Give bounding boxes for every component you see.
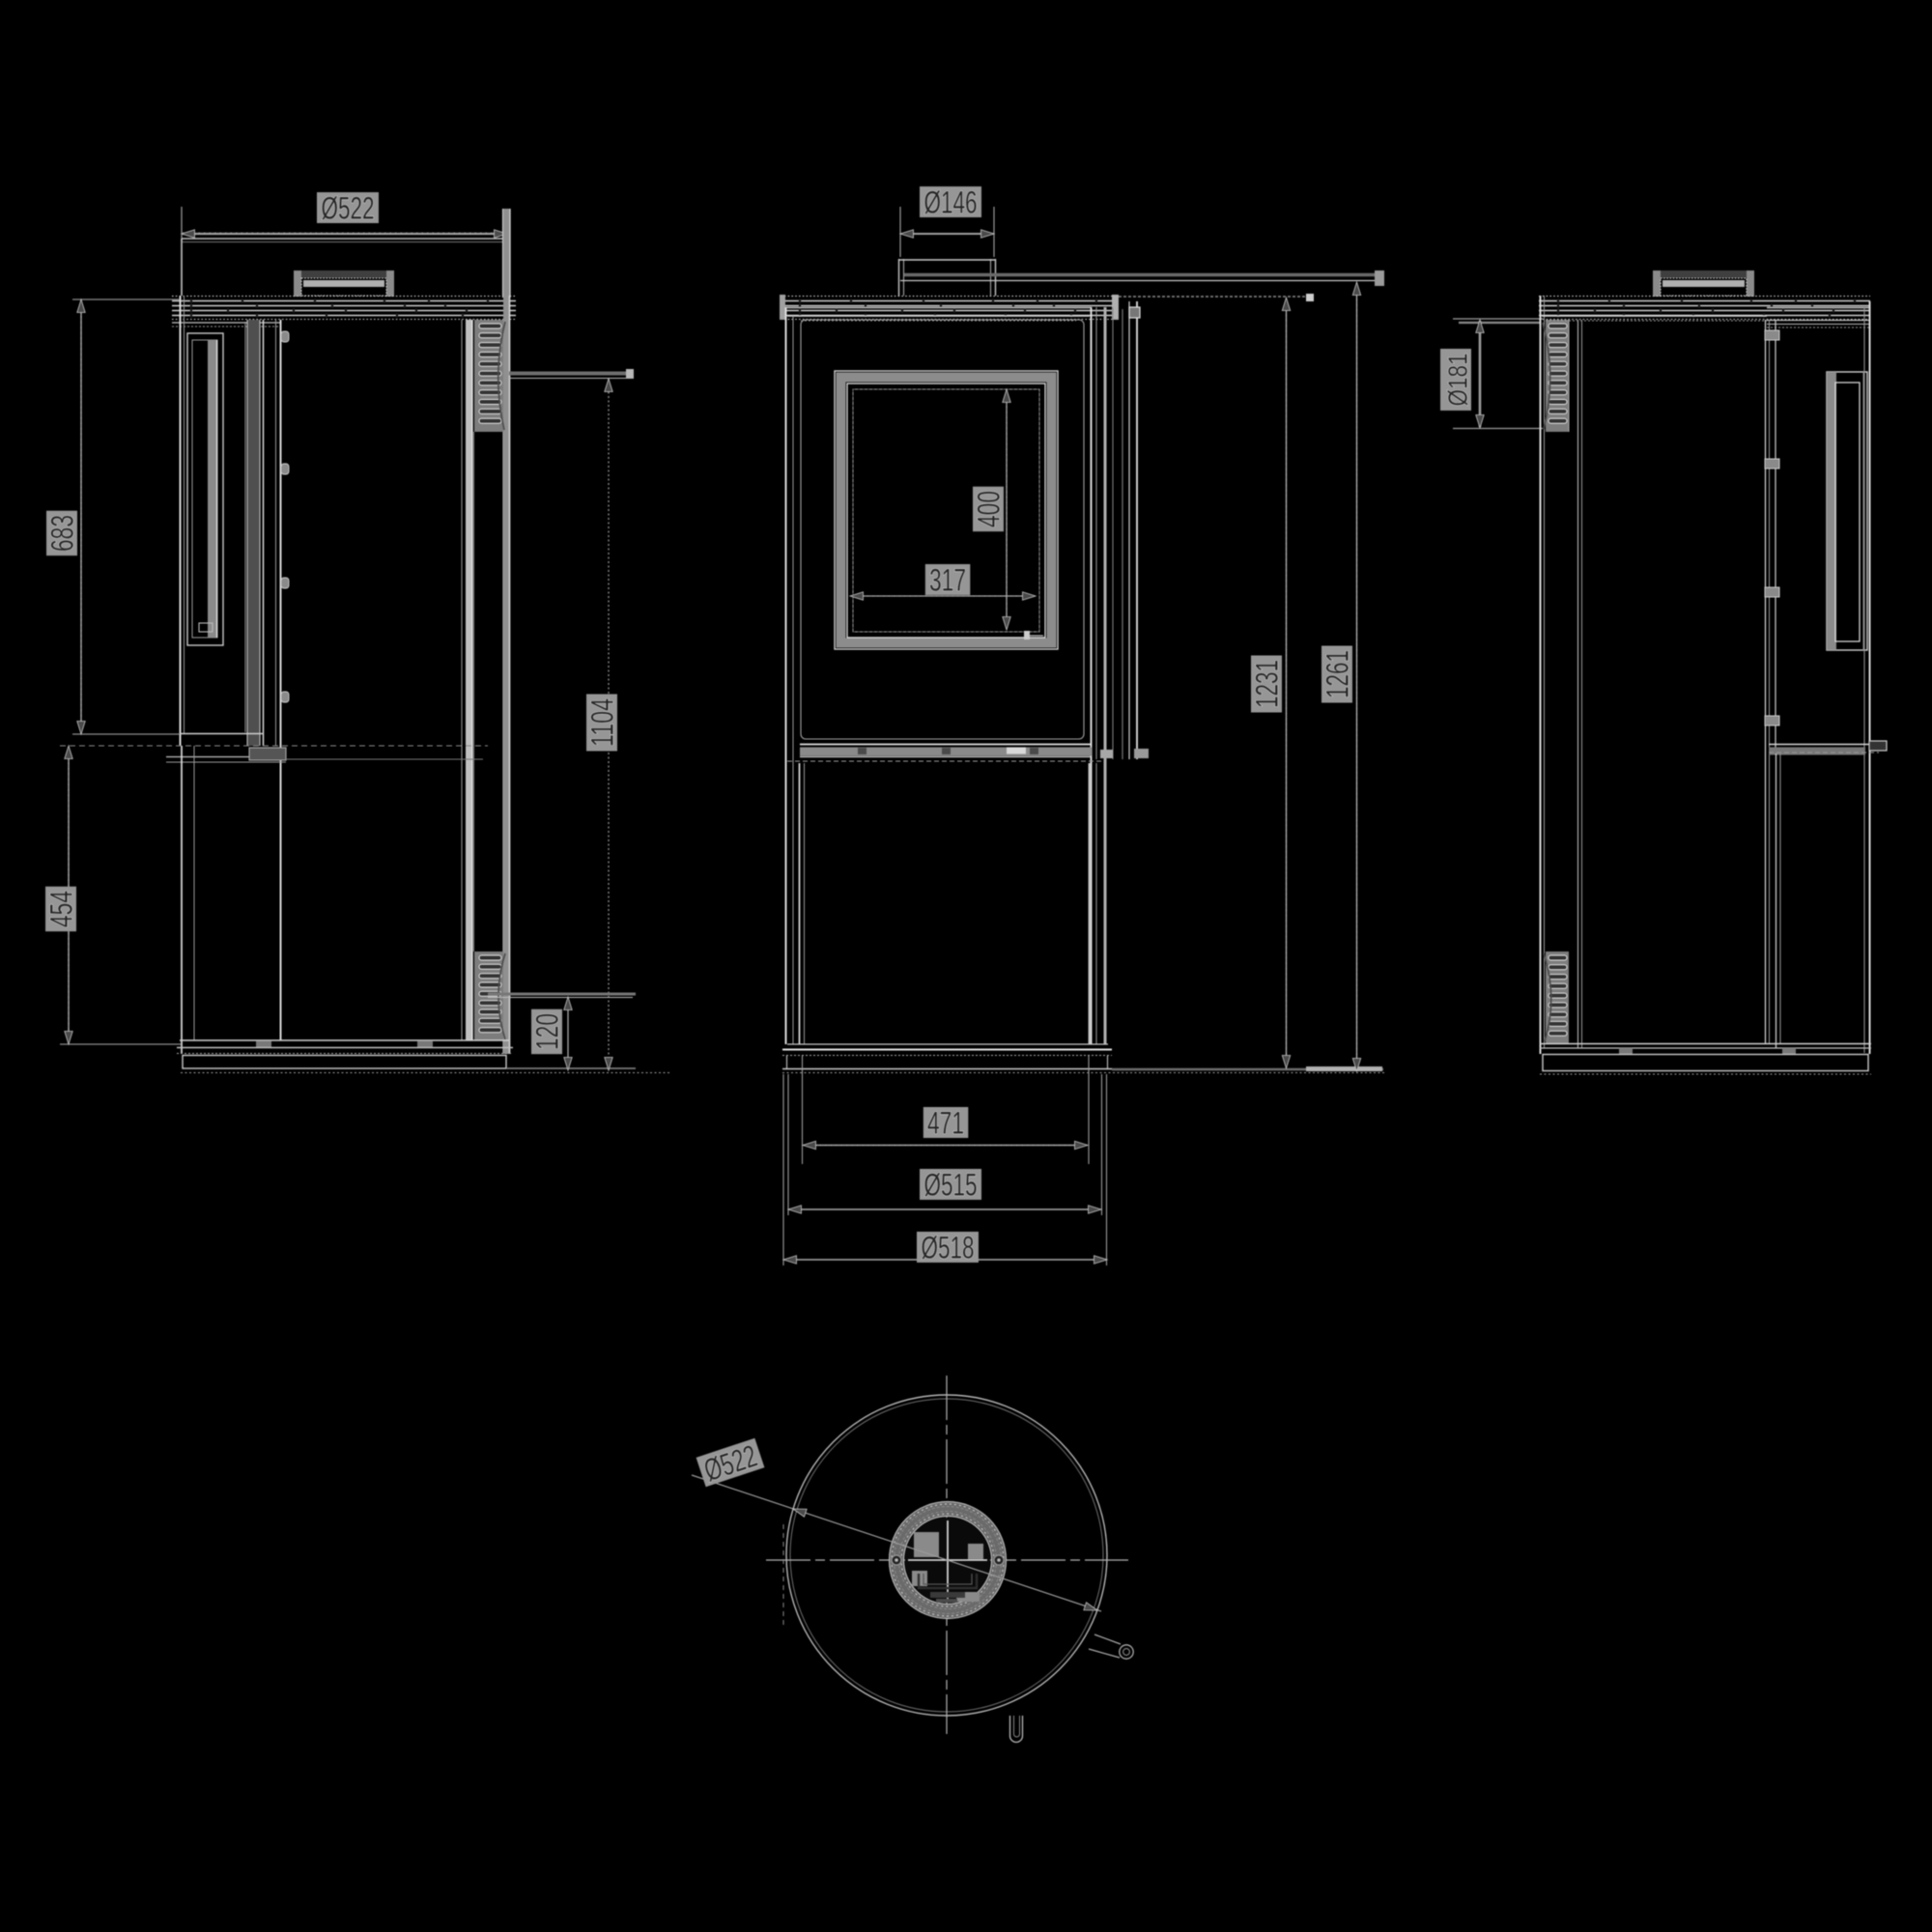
svg-text:317: 317 (929, 563, 966, 598)
svg-text:Ø522: Ø522 (322, 191, 375, 226)
svg-text:1231: 1231 (1250, 660, 1285, 708)
svg-text:400: 400 (972, 491, 1007, 527)
svg-text:Ø515: Ø515 (924, 1168, 978, 1203)
svg-text:120: 120 (530, 1013, 565, 1050)
svg-text:Ø181: Ø181 (1443, 354, 1473, 407)
svg-text:683: 683 (45, 515, 80, 552)
svg-text:Ø146: Ø146 (924, 185, 978, 220)
svg-text:Ø518: Ø518 (922, 1231, 975, 1265)
svg-text:1261: 1261 (1321, 650, 1355, 698)
svg-text:454: 454 (44, 891, 79, 927)
svg-text:1104: 1104 (585, 698, 620, 747)
svg-text:471: 471 (927, 1106, 964, 1141)
